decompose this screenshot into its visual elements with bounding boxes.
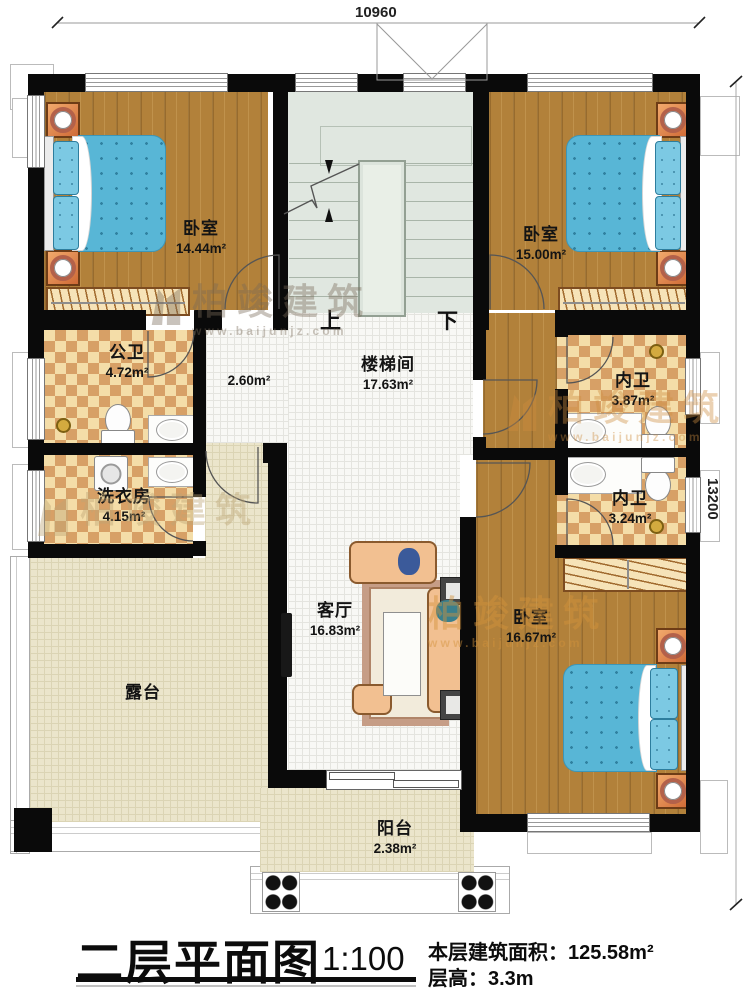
room-name: 洗衣房 xyxy=(97,486,151,508)
window-symbol xyxy=(527,73,653,92)
floor-area-info: 本层建筑面积：125.58m² xyxy=(428,936,654,965)
stair-steps-left-flight xyxy=(289,163,358,313)
pillow xyxy=(655,196,681,250)
lamp-icon xyxy=(50,107,76,133)
pillow xyxy=(650,668,678,719)
window-symbol xyxy=(685,477,701,533)
balcony-column xyxy=(458,872,496,912)
coffee-table xyxy=(383,612,421,696)
room-area: 16.83m² xyxy=(310,622,360,640)
room-name: 卧室 xyxy=(176,218,226,240)
wall-segment xyxy=(686,74,700,832)
room-label-balcony: 阳台 2.38m² xyxy=(374,818,417,858)
person-figure xyxy=(398,548,420,575)
nightstand xyxy=(46,250,80,286)
floor-height-label: 层高： xyxy=(428,968,488,989)
stair-up-label: 上 xyxy=(320,305,341,335)
room-label-ensuite-lower: 内卫 3.24m² xyxy=(609,488,652,528)
stair-center-stringer xyxy=(358,160,406,317)
nightstand xyxy=(656,773,690,809)
wall-segment xyxy=(278,310,288,330)
window-symbol xyxy=(27,95,45,168)
room-area: 16.67m² xyxy=(506,629,556,647)
toilet-tank xyxy=(641,457,675,473)
wall-segment xyxy=(650,814,700,832)
room-area: 15.00m² xyxy=(516,246,566,264)
room-label-hall: 2.60m² xyxy=(228,372,271,390)
title-underline xyxy=(76,977,416,982)
pillow xyxy=(53,141,79,195)
lamp-icon xyxy=(660,778,686,804)
floor-plan-canvas: 10960 13200 卧室 14.44m² 卧室 15.00m² 卧室 16.… xyxy=(0,0,750,989)
wall-segment xyxy=(193,330,206,497)
sliding-door xyxy=(326,770,462,790)
stair-steps-right-flight xyxy=(402,163,473,313)
room-area: 2.38m² xyxy=(374,840,417,858)
nightstand xyxy=(46,102,80,138)
nightstand xyxy=(656,250,690,286)
room-area: 4.15m² xyxy=(97,508,151,526)
wall-segment xyxy=(44,443,193,455)
lamp-icon xyxy=(660,107,686,133)
room-name: 内卫 xyxy=(612,370,655,392)
tv xyxy=(281,613,292,677)
exterior-ledge xyxy=(700,96,740,156)
room-name: 卧室 xyxy=(516,224,566,246)
window-symbol xyxy=(85,73,228,92)
floor-corridor xyxy=(483,313,557,448)
wall-segment xyxy=(555,322,700,335)
floor-area-label: 本层建筑面积： xyxy=(428,942,568,964)
room-label-bedroom-top-right: 卧室 15.00m² xyxy=(516,224,566,264)
nightstand xyxy=(656,102,690,138)
pillow xyxy=(650,719,678,770)
room-label-bedroom-top-left: 卧室 14.44m² xyxy=(176,218,226,258)
room-label-stairwell: 楼梯间 17.63m² xyxy=(361,354,415,394)
window-symbol xyxy=(27,470,45,542)
title-underline-light xyxy=(76,985,416,987)
window-symbol xyxy=(685,358,701,415)
sliding-door-panel xyxy=(393,780,459,788)
window-sill xyxy=(700,352,720,424)
floor-drain xyxy=(649,344,664,359)
plan-scale: 1:100 xyxy=(322,940,405,978)
room-name: 内卫 xyxy=(609,488,652,510)
sofa xyxy=(349,541,437,584)
pillow xyxy=(655,141,681,195)
floor-drain xyxy=(56,418,71,433)
wall-segment xyxy=(460,517,476,814)
room-label-terrace: 露台 xyxy=(125,682,161,704)
wall-segment xyxy=(460,814,527,832)
wall-segment xyxy=(555,389,568,495)
window-symbol xyxy=(527,813,650,832)
exterior-ledge xyxy=(700,780,728,854)
room-area: 3.24m² xyxy=(609,510,652,528)
lamp-icon xyxy=(660,633,686,659)
dimension-top: 10960 xyxy=(355,4,397,21)
floor-area-value: 125.58m² xyxy=(568,942,654,964)
room-name: 公卫 xyxy=(106,342,149,364)
wall-segment xyxy=(28,310,146,330)
wall-segment xyxy=(473,448,557,460)
sink-basin xyxy=(570,419,606,444)
sliding-door-panel xyxy=(329,772,395,780)
lamp-icon xyxy=(660,255,686,281)
sink-basin xyxy=(156,461,188,483)
wall-segment xyxy=(273,92,288,330)
room-label-laundry: 洗衣房 4.15m² xyxy=(97,486,151,526)
nightstand xyxy=(656,628,690,664)
room-area: 4.72m² xyxy=(106,364,149,382)
window-sill xyxy=(527,832,652,854)
sink-basin xyxy=(570,462,606,487)
room-name: 露台 xyxy=(125,682,161,704)
pillow xyxy=(53,196,79,250)
room-area: 14.44m² xyxy=(176,240,226,258)
stair-down-label: 下 xyxy=(437,305,458,335)
window-symbol xyxy=(27,358,45,440)
wall-segment xyxy=(268,770,326,788)
room-label-bedroom-bottom-right: 卧室 16.67m² xyxy=(506,607,556,647)
dimension-right: 13200 xyxy=(704,478,721,520)
wardrobe xyxy=(563,557,691,592)
balcony-column xyxy=(262,872,300,912)
room-area: 2.60m² xyxy=(228,372,271,390)
wall-segment xyxy=(194,310,222,330)
wall-segment xyxy=(193,541,206,556)
room-label-public-bathroom: 公卫 4.72m² xyxy=(106,342,149,382)
wall-segment xyxy=(28,544,193,558)
wall-segment xyxy=(555,545,700,558)
room-area: 3.87m² xyxy=(612,392,655,410)
terrace-corner-column xyxy=(14,808,52,852)
wall-segment xyxy=(557,448,686,457)
floor-height-info: 层高：3.3m xyxy=(428,962,534,989)
lamp-icon xyxy=(50,255,76,281)
room-name: 卧室 xyxy=(506,607,556,629)
room-label-living-room: 客厅 16.83m² xyxy=(310,600,360,640)
wall-segment xyxy=(473,92,489,330)
room-name: 楼梯间 xyxy=(361,354,415,376)
sink-basin xyxy=(156,419,188,441)
floor-terrace-notch xyxy=(205,443,268,558)
room-label-ensuite-upper: 内卫 3.87m² xyxy=(612,370,655,410)
room-area: 17.63m² xyxy=(361,376,415,394)
person-figure xyxy=(436,600,460,622)
window-symbol xyxy=(295,73,358,92)
window-symbol xyxy=(403,73,466,92)
floor-height-value: 3.3m xyxy=(488,968,534,989)
room-name: 客厅 xyxy=(310,600,360,622)
room-name: 阳台 xyxy=(374,818,417,840)
wall-segment xyxy=(473,313,486,380)
floor-balcony xyxy=(260,788,474,872)
